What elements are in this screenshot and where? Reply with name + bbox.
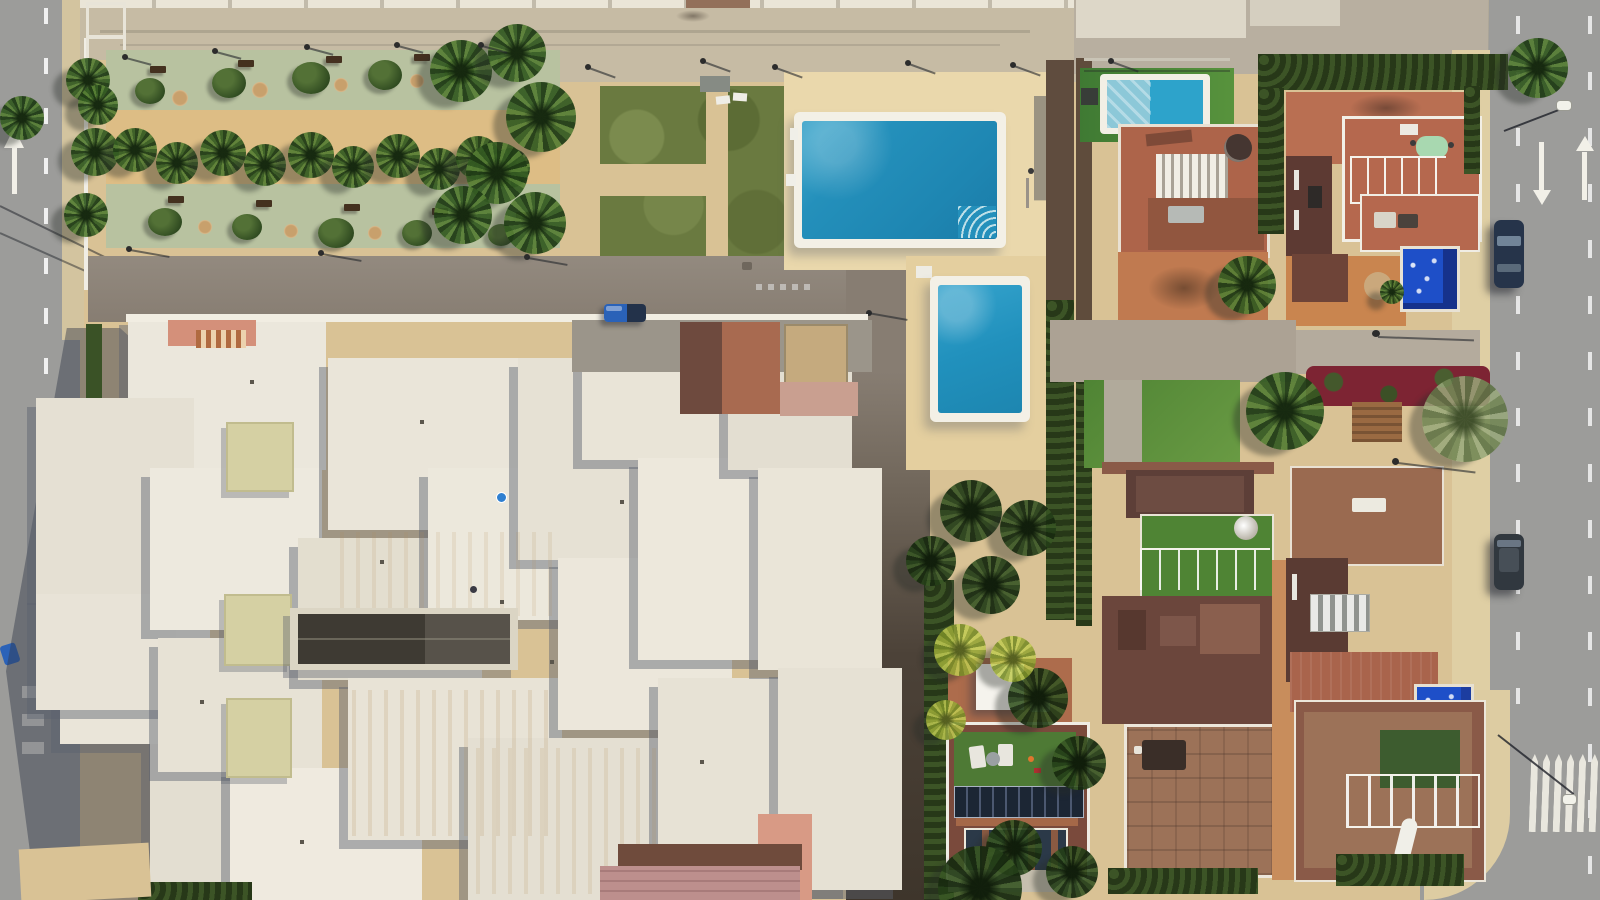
car-windshield xyxy=(1497,236,1521,246)
wing-skylight xyxy=(1308,186,1322,208)
dirt-courtyard xyxy=(784,324,848,384)
shrub xyxy=(212,68,246,98)
palm-tree-small xyxy=(1380,280,1404,304)
terrace-chair xyxy=(1410,140,1416,146)
round-table xyxy=(986,752,1000,766)
shrub xyxy=(402,220,432,246)
palm-tree xyxy=(430,40,492,102)
palm-tree xyxy=(488,24,546,82)
park-bench xyxy=(150,66,166,73)
wing-window xyxy=(1294,210,1299,230)
satellite-dish xyxy=(1234,516,1258,540)
tree-pit xyxy=(334,78,348,92)
wing-window xyxy=(1294,170,1299,190)
car-roof-highlight xyxy=(606,306,622,311)
palm-tree xyxy=(0,96,44,140)
sun-lounger xyxy=(716,95,731,104)
shrub xyxy=(318,218,354,248)
tree-pit xyxy=(410,74,424,88)
roof-table-round xyxy=(1224,134,1252,162)
shrub xyxy=(148,208,182,236)
lane-arrow-down-head xyxy=(1533,190,1551,205)
street-stain xyxy=(676,10,710,22)
small-pool-water xyxy=(938,285,1022,413)
palm-tree xyxy=(244,144,286,186)
deck-white-box xyxy=(916,266,932,278)
palm-tree-yellow xyxy=(990,636,1036,682)
greenhouse-roof xyxy=(1310,594,1370,632)
palm-tree xyxy=(1000,500,1056,556)
roof-vent xyxy=(250,380,254,384)
car-rear-window xyxy=(1497,264,1521,272)
garden-box xyxy=(1081,88,1098,105)
park-bench xyxy=(326,56,342,63)
palm-tree xyxy=(1052,736,1106,790)
lane-arrow-up-stem xyxy=(1582,152,1587,200)
lawn-path xyxy=(600,164,720,196)
hedge-bottom xyxy=(138,882,252,900)
bottom-left-sidewalk xyxy=(19,843,152,900)
palm-tree xyxy=(962,556,1020,614)
apartment-roof-block xyxy=(758,468,882,670)
shrub xyxy=(368,60,402,90)
sun-lounger xyxy=(969,745,987,769)
palm-tree xyxy=(376,134,420,178)
sun-lounger xyxy=(1398,214,1418,228)
stone-path xyxy=(1104,380,1142,468)
roof-vent xyxy=(420,420,424,424)
solar-panel-array xyxy=(954,786,1084,818)
street-lamp-head xyxy=(1556,100,1572,111)
palm-tree xyxy=(418,148,460,190)
left-road-arrow-stem xyxy=(12,148,17,194)
palm-tree xyxy=(906,536,956,586)
villa4-hedge xyxy=(1336,854,1464,886)
pergola-deck xyxy=(1352,402,1402,442)
palm-tree xyxy=(71,128,119,176)
palm-tree xyxy=(200,130,246,176)
terrace-railing xyxy=(1140,548,1270,590)
shrub xyxy=(135,78,165,104)
villa3-hedge xyxy=(1108,868,1258,894)
villa1-lower-terrace xyxy=(1148,198,1264,250)
pergola-beam-shadow xyxy=(1084,70,1230,72)
skylight-center-line xyxy=(298,638,510,640)
hedge-vertical xyxy=(1258,88,1284,234)
deck-lamp xyxy=(1028,168,1034,174)
terrace-lounger-white xyxy=(1352,498,1386,512)
palm-tree-yellow xyxy=(926,700,966,740)
street-tire-mark xyxy=(100,30,1030,33)
villa3-tile-patch xyxy=(1200,604,1260,654)
stairwell-stripes xyxy=(196,330,246,348)
service-drive-horizontal xyxy=(88,256,846,322)
park-bench xyxy=(168,196,184,203)
park-bench xyxy=(238,60,254,67)
shrub xyxy=(232,214,262,240)
speed-bump-marks xyxy=(756,284,812,290)
palm-tree xyxy=(1046,846,1098,898)
pool-ladder xyxy=(786,174,796,186)
roof-vent xyxy=(550,660,554,664)
park-pergola-frame xyxy=(86,2,126,38)
palm-tree xyxy=(434,186,492,244)
palm-tree xyxy=(1218,256,1276,314)
roof-blue-dot xyxy=(496,492,507,503)
palm-tree-yellow xyxy=(934,624,986,676)
palm-tree xyxy=(156,142,198,184)
wing-window xyxy=(1292,574,1297,600)
manhole xyxy=(742,262,752,270)
hedge-row-top xyxy=(1258,54,1508,90)
park-bench xyxy=(256,200,272,207)
tree-pit xyxy=(252,82,268,98)
tree-pit xyxy=(198,220,212,234)
parking-concrete-band xyxy=(1050,320,1296,382)
pergola-beam xyxy=(1084,58,1230,61)
garage-roof xyxy=(1292,254,1348,302)
terrace-table-green xyxy=(1416,136,1448,158)
dark-roof-section xyxy=(680,322,722,414)
roof-vent xyxy=(700,760,704,764)
terracotta-roof-section xyxy=(722,322,780,414)
palm-tree xyxy=(113,128,157,172)
park-bench xyxy=(344,204,360,211)
car-windshield xyxy=(1497,540,1521,547)
villa2-maroon-wing xyxy=(1286,156,1332,264)
terrace-table-dark xyxy=(1142,740,1186,770)
equipment-box xyxy=(700,76,730,92)
pink-walkway xyxy=(600,866,800,900)
car-roof xyxy=(1499,548,1519,572)
lane-arrow-down-stem xyxy=(1539,142,1544,190)
roof-dark-dot xyxy=(470,586,477,593)
hedge-strip-west xyxy=(86,324,102,406)
roof-vent xyxy=(500,600,504,604)
tree-pit xyxy=(368,226,382,240)
villa4-top-terrace xyxy=(1290,466,1444,566)
sun-lounger xyxy=(733,93,748,102)
parked-car-dark xyxy=(1494,220,1524,288)
roof-skylight xyxy=(224,594,292,666)
ac-unit xyxy=(1400,124,1418,135)
corrugated-roof-streaks xyxy=(340,532,562,616)
pergola-slats xyxy=(1156,154,1228,202)
palm-tree xyxy=(504,192,566,254)
palm-tree xyxy=(78,85,118,125)
pool-ladder xyxy=(790,128,798,140)
park-bench xyxy=(414,54,430,61)
roof-vent xyxy=(380,560,384,564)
hedge-roadside xyxy=(1464,86,1480,174)
roof-vent xyxy=(300,840,304,844)
red-object xyxy=(1034,768,1041,773)
terrace-chair xyxy=(1448,142,1454,148)
villa3-window-dark xyxy=(1118,610,1146,650)
sun-lounger xyxy=(1374,212,1396,228)
right-road-dashed-line xyxy=(1516,16,1520,704)
villa2-pool-water xyxy=(1403,249,1443,303)
pool-cover-texture xyxy=(1107,80,1151,128)
palm-tree xyxy=(1508,38,1568,98)
tree-pit xyxy=(284,224,298,238)
pool-steps xyxy=(958,206,996,238)
apron-white-roof xyxy=(1250,0,1340,26)
pink-paving xyxy=(780,382,858,416)
palm-tree xyxy=(64,193,108,237)
palm-tree xyxy=(506,82,576,152)
palm-tree xyxy=(288,132,334,178)
roof-vent xyxy=(620,500,624,504)
sun-lounger xyxy=(1168,206,1204,223)
terrace-chair-white xyxy=(1134,746,1142,754)
roof-skylight xyxy=(226,698,292,778)
villa3-roof-inner xyxy=(1136,476,1244,512)
roof-vent xyxy=(200,700,204,704)
street-lamp-head xyxy=(1562,794,1577,805)
sun-lounger xyxy=(998,744,1013,766)
palm-tree xyxy=(332,146,374,188)
deck-handrail xyxy=(1026,178,1029,208)
fan-palm xyxy=(1422,376,1508,462)
palm-tree xyxy=(940,480,1002,542)
palm-tree xyxy=(1246,372,1324,450)
shrub xyxy=(292,62,330,94)
lawn-path xyxy=(706,86,728,256)
aerial-photo xyxy=(0,0,1600,900)
roof-skylight xyxy=(226,422,294,492)
street-tire-mark xyxy=(120,44,1000,46)
person xyxy=(1028,756,1034,762)
apron-white-roof xyxy=(1076,0,1246,38)
villa3-tile-patch xyxy=(1160,616,1196,646)
tree-pit xyxy=(172,90,188,106)
lane-arrow-up-head xyxy=(1576,136,1594,151)
palm-shadow-patch xyxy=(1148,266,1220,310)
